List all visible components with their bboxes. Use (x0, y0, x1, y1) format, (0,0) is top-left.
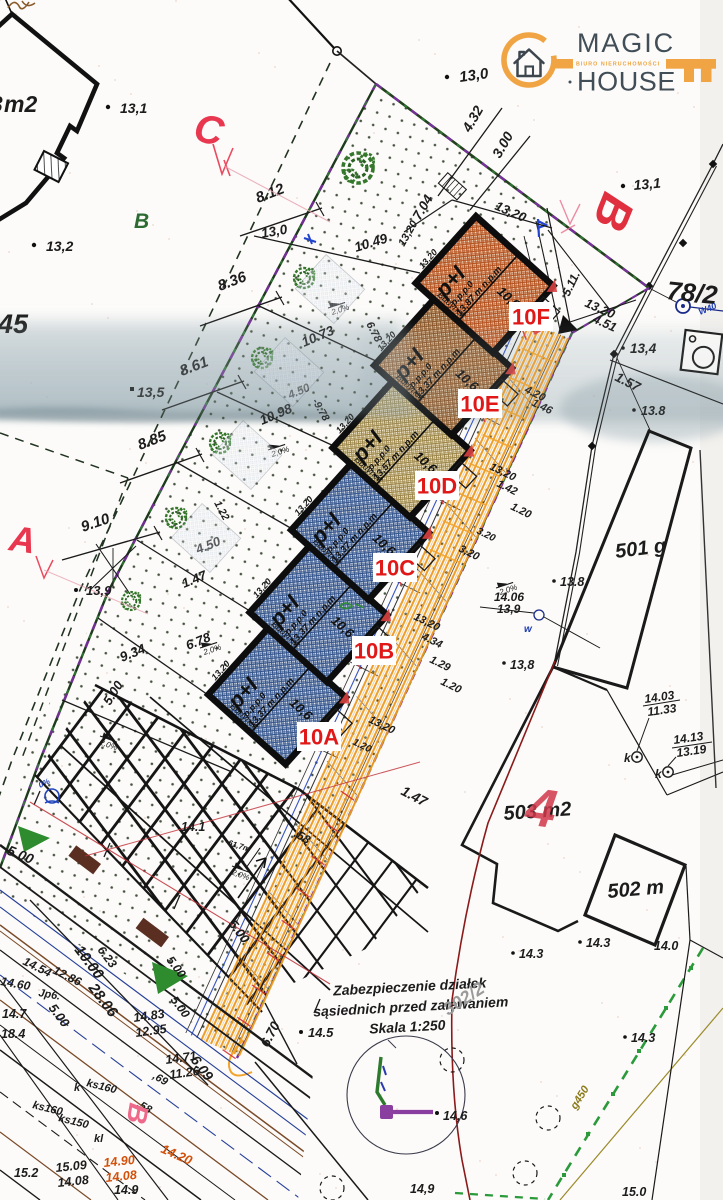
svg-text:13,1: 13,1 (120, 100, 147, 116)
svg-text:10C: 10C (375, 556, 415, 581)
svg-text:10B: 10B (354, 639, 394, 664)
svg-text:k: k (74, 1082, 81, 1094)
svg-text:14.1: 14.1 (181, 820, 205, 834)
svg-text:14.3: 14.3 (519, 947, 543, 961)
svg-text:3: 3 (0, 91, 3, 117)
svg-text:14.3: 14.3 (586, 936, 610, 950)
svg-text:15.0: 15.0 (622, 1185, 646, 1199)
svg-text:BIURO NIERUCHOMOŚCI: BIURO NIERUCHOMOŚCI (576, 61, 660, 68)
svg-text:MAGIC: MAGIC (577, 28, 675, 58)
svg-text:HOUSE: HOUSE (577, 67, 676, 97)
svg-text:14.5: 14.5 (308, 1025, 334, 1040)
svg-text:14.3: 14.3 (631, 1031, 655, 1045)
svg-text:10F: 10F (512, 305, 550, 330)
svg-text:A: A (6, 517, 38, 561)
svg-text:14.7: 14.7 (2, 1007, 27, 1021)
svg-text:18.4: 18.4 (1, 1027, 25, 1041)
svg-text:kl: kl (94, 1133, 104, 1145)
svg-text:13,2: 13,2 (46, 238, 73, 254)
svg-text:15.2: 15.2 (14, 1166, 38, 1180)
svg-text:B: B (134, 210, 149, 233)
svg-text:13,9: 13,9 (86, 583, 112, 598)
svg-text:10E: 10E (460, 392, 499, 417)
svg-text:13,1: 13,1 (633, 175, 662, 193)
svg-text:m2: m2 (4, 91, 37, 117)
svg-text:13,8: 13,8 (510, 658, 534, 672)
svg-text:w: w (524, 624, 533, 635)
svg-text:10D: 10D (417, 474, 457, 499)
svg-text:13.8: 13.8 (560, 575, 584, 589)
svg-text:14,9: 14,9 (410, 1182, 434, 1196)
svg-text:14.9: 14.9 (114, 1183, 138, 1197)
svg-text:10A: 10A (299, 725, 339, 750)
svg-text:14.0: 14.0 (654, 939, 678, 953)
svg-text:14,6: 14,6 (443, 1109, 468, 1123)
